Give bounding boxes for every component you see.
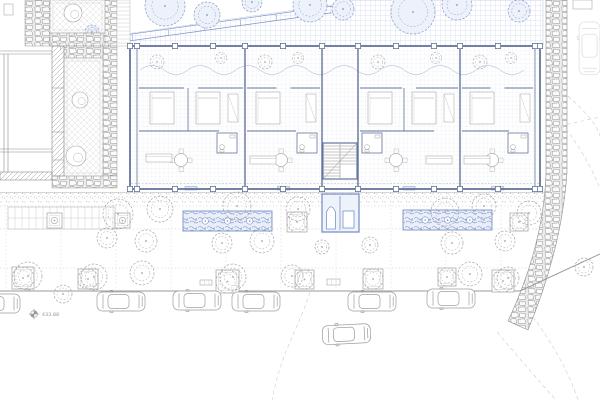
- plaza: [0, 205, 600, 293]
- neighbor-left: [0, 0, 130, 188]
- benchmark-elevation-label: 433.88: [42, 312, 59, 318]
- benchmark: [29, 309, 40, 320]
- floor-plan-canvas: 433.88: [0, 0, 600, 400]
- entrance-pavilion: [322, 194, 359, 232]
- sidewalk-stipple-band: [0, 193, 546, 205]
- site-plan-drawing: 433.88: [0, 0, 600, 400]
